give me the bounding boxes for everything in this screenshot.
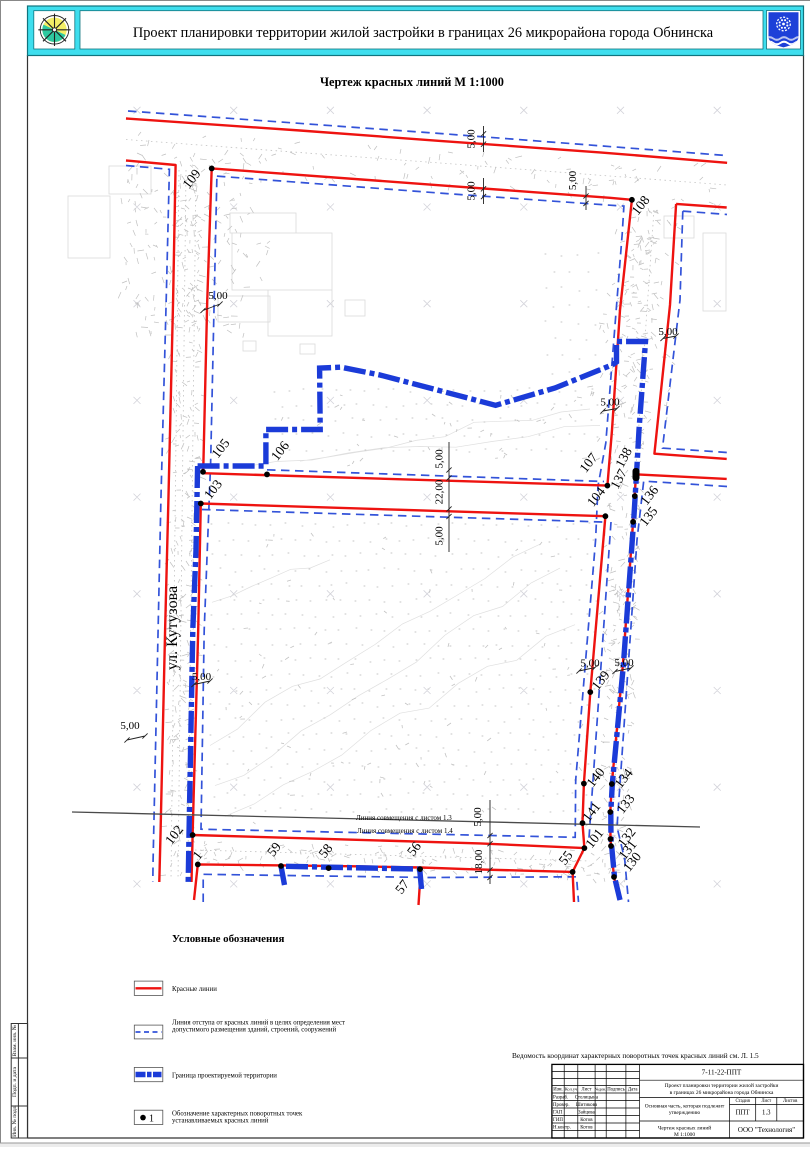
svg-text:Основная часть, которая подлеж: Основная часть, которая подлежит	[645, 1104, 725, 1110]
svg-text:7-11-22-ППТ: 7-11-22-ППТ	[702, 1069, 742, 1077]
svg-text:в границах 26 микрорайона горо: в границах 26 микрорайона города Обнинск…	[670, 1089, 774, 1096]
svg-text:устанавливаемых красных линий: устанавливаемых красных линий	[172, 1118, 269, 1125]
svg-text:Линия совмещения с листом 1.4: Линия совмещения с листом 1.4	[357, 827, 453, 835]
svg-text:Ведомость координат характерны: Ведомость координат характерных поворотн…	[512, 1051, 759, 1060]
svg-text:Стадия: Стадия	[735, 1099, 750, 1104]
svg-text:1: 1	[149, 1114, 154, 1125]
svg-text:утверждению: утверждению	[669, 1110, 700, 1116]
svg-text:5,00: 5,00	[208, 290, 228, 302]
svg-text:5,00: 5,00	[580, 658, 600, 670]
svg-text:Провер.: Провер.	[553, 1103, 570, 1108]
svg-text:Проект планировки территории ж: Проект планировки территории жилой застр…	[133, 25, 714, 41]
svg-text:5,00: 5,00	[434, 526, 446, 546]
svg-text:Подп. и дата: Подп. и дата	[12, 1067, 18, 1097]
svg-text:5,00: 5,00	[472, 807, 484, 827]
svg-text:Котов: Котов	[580, 1126, 593, 1131]
svg-text:18,00: 18,00	[473, 849, 485, 874]
svg-text:Чертеж красных линий: Чертеж красных линий	[658, 1125, 711, 1132]
svg-text:Лист: Лист	[581, 1088, 592, 1093]
svg-text:Условные обозначения: Условные обозначения	[172, 933, 285, 945]
svg-text:5,00: 5,00	[567, 170, 579, 190]
svg-text:Столицына: Столицына	[575, 1096, 599, 1101]
svg-text:5,00: 5,00	[120, 720, 140, 732]
svg-text:5,00: 5,00	[614, 657, 634, 669]
svg-text:Кол.уч: Кол.уч	[565, 1087, 578, 1092]
svg-text:Чертеж красных линий М 1:1000: Чертеж красных линий М 1:1000	[320, 75, 504, 89]
svg-text:Линия совмещения с листом 1.3: Линия совмещения с листом 1.3	[356, 814, 452, 822]
svg-text:5,00: 5,00	[600, 397, 620, 409]
svg-text:5,00: 5,00	[466, 129, 478, 149]
svg-text:Шитикова: Шитикова	[576, 1103, 598, 1108]
svg-text:Зайцева: Зайцева	[578, 1111, 595, 1116]
svg-text:Лист: Лист	[761, 1099, 771, 1104]
svg-text:ул. Кутузова: ул. Кутузова	[164, 586, 181, 670]
svg-text:5,00: 5,00	[466, 181, 478, 201]
svg-text:М 1:1000: М 1:1000	[674, 1132, 695, 1138]
svg-text:№док.: №док.	[595, 1087, 607, 1092]
svg-text:Н.контр.: Н.контр.	[553, 1126, 571, 1131]
svg-text:Линия отступа от красных линий: Линия отступа от красных линий в целях о…	[172, 1020, 345, 1027]
svg-text:Котов: Котов	[580, 1118, 593, 1123]
svg-text:Обозначение характерных поворо: Обозначение характерных поворотных точек	[172, 1111, 303, 1118]
svg-text:Проект планировки территории ж: Проект планировки территории жилой застр…	[665, 1082, 779, 1089]
svg-text:ГИП: ГИП	[553, 1118, 563, 1123]
svg-text:Дата: Дата	[628, 1088, 638, 1093]
svg-text:22,00: 22,00	[434, 479, 446, 504]
svg-text:Взам. инв. №: Взам. инв. №	[12, 1025, 18, 1057]
svg-text:Листов: Листов	[783, 1099, 798, 1104]
svg-text:1.3: 1.3	[762, 1110, 771, 1117]
svg-text:Граница проектируемой территор: Граница проектируемой территории	[172, 1073, 277, 1080]
svg-text:Инв. № подл.: Инв. № подл.	[12, 1104, 18, 1136]
svg-text:ППТ: ППТ	[736, 1110, 751, 1117]
svg-text:ГАП: ГАП	[553, 1111, 563, 1116]
svg-text:Красные линии: Красные линии	[172, 986, 217, 993]
svg-text:допустимого размещения зданий,: допустимого размещения зданий, строений,…	[172, 1027, 337, 1034]
svg-text:5,00: 5,00	[434, 449, 446, 469]
svg-text:Разраб.: Разраб.	[553, 1096, 568, 1101]
svg-text:ООО "Технология": ООО "Технология"	[738, 1126, 795, 1134]
svg-text:Изм.: Изм.	[553, 1088, 563, 1093]
svg-text:Подпись: Подпись	[607, 1088, 625, 1093]
